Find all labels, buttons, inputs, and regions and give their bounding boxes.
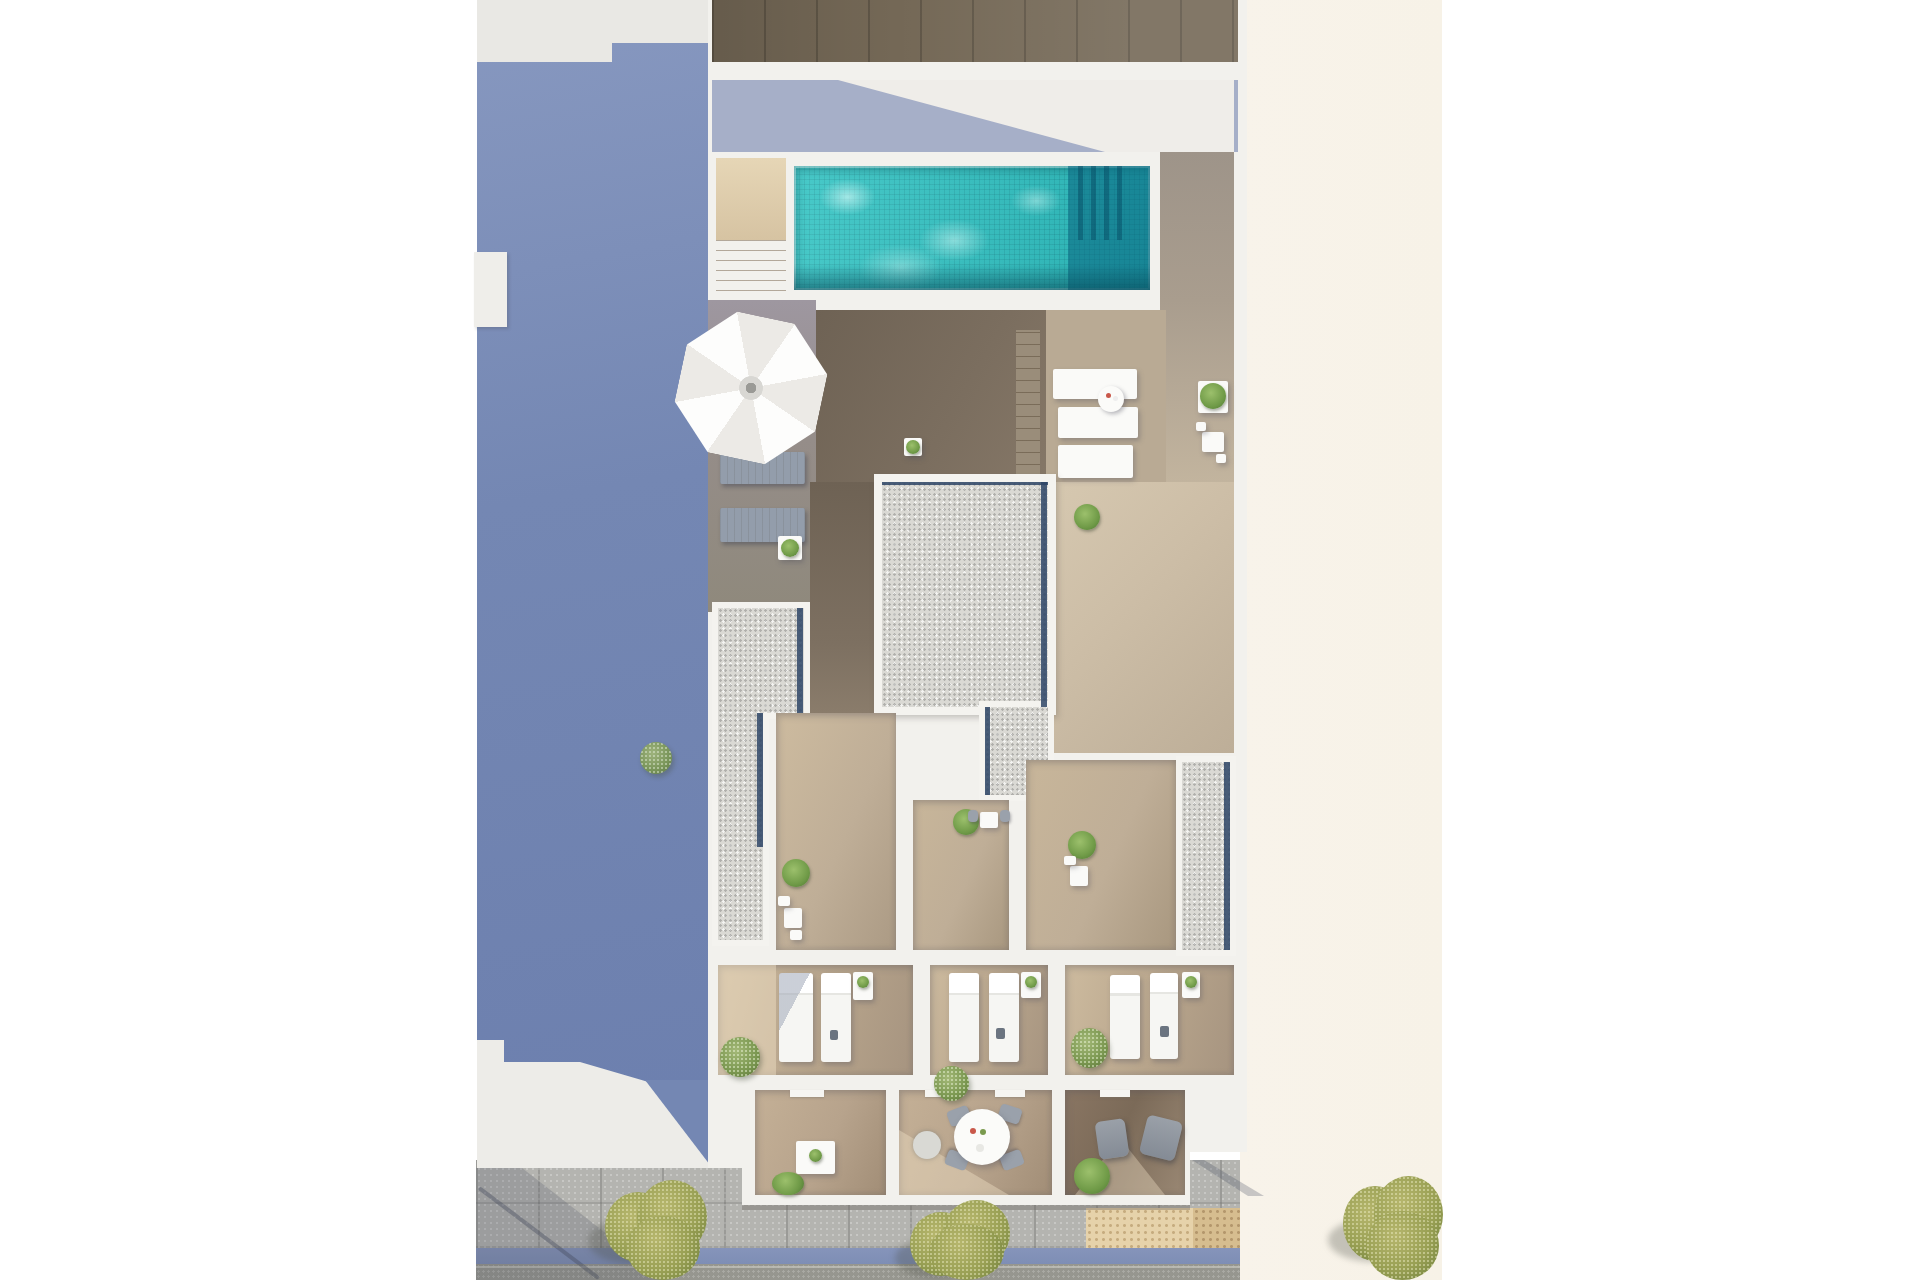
flower-red [1106,393,1111,398]
parasol-pole [739,376,763,400]
terrace-bush [640,742,672,774]
potted-plant [809,1149,822,1162]
table-plate [976,1144,984,1152]
potted-plant [772,1172,804,1195]
corridor-dark-wood [810,482,882,713]
sun-lounger [1110,975,1140,1059]
gravel-skylight-strip-east [1182,762,1230,950]
cafe-chair [1216,454,1226,463]
terrace-chair [1064,856,1076,865]
drain-gutter [1041,482,1047,707]
potted-tree [1200,383,1226,409]
towel-item [1160,1026,1169,1037]
cafe-chair [1196,422,1206,431]
drain-gutter [1224,762,1230,950]
sun-lounger [949,973,979,1062]
cafe-table-set [1202,432,1224,452]
drain-gutter [985,707,990,795]
potted-plant [1185,976,1197,988]
potted-tree [1068,831,1096,859]
potted-tree [782,859,810,887]
pool-stair-treads [716,240,786,300]
tree-foliage [1366,1211,1439,1280]
terrace-chair [968,810,978,822]
table-item-red [970,1128,976,1134]
drain-gutter [797,608,803,713]
stairwell-void [812,310,1046,482]
potted-plant [906,440,920,454]
slatted-bench [1058,407,1138,438]
terrace-table [980,812,998,828]
flower-white [1113,396,1118,401]
tactile-paving-dark [1193,1208,1240,1248]
planter-bush [720,1037,760,1077]
terrace-chair [778,896,790,906]
planter-bush [1071,1028,1108,1068]
bistro-table [1098,386,1124,412]
table-item-green [980,1129,986,1135]
tree-foliage [626,1216,700,1280]
round-dining-table [954,1109,1010,1165]
terrace-chair [1000,810,1010,822]
sun-lounger [821,973,851,1062]
pool-stair-landing [716,158,786,240]
street-tree [1343,1176,1447,1280]
building-plot [708,0,1247,1205]
door-sill [790,1090,824,1097]
cast-shadow-blue [477,43,710,1168]
drain-gutter [757,713,763,847]
street-tree [605,1180,711,1280]
door-sill [1100,1090,1130,1097]
potted-plant [781,539,799,557]
terrace-c [1026,760,1176,950]
towel-item [830,1030,838,1040]
slatted-bench [1053,369,1137,399]
potted-plant [1025,976,1037,988]
top-wood-deck-band [712,0,1238,62]
drain-gutter [882,482,1048,485]
tree-foliage [929,1224,1004,1280]
rooftop-render [0,0,1920,1280]
terrace-table [1070,866,1088,886]
slatted-bench [1058,445,1133,478]
cream-side-band [1240,0,1442,1280]
sun-lounger [989,973,1019,1062]
potted-plant [1074,1158,1110,1194]
potted-plant [857,976,869,988]
neighbor-wall-notch [474,252,507,327]
street-tree [910,1200,1014,1280]
balcony-rug [913,1131,941,1159]
towel-item [996,1028,1005,1039]
sun-lounger [1150,973,1178,1059]
terrace-table [784,908,802,928]
stairwell-stair-strip [1016,330,1040,476]
door-sill [995,1090,1025,1097]
gravel-roof-slab [882,482,1048,707]
planter-bush [934,1066,969,1101]
armchair [1095,1118,1130,1160]
potted-tree [1074,504,1100,530]
sun-lounger [779,973,813,1062]
pool-underwater-steps [1078,166,1130,240]
pool-south-shade [794,264,1150,290]
terrace-chair [790,930,802,940]
